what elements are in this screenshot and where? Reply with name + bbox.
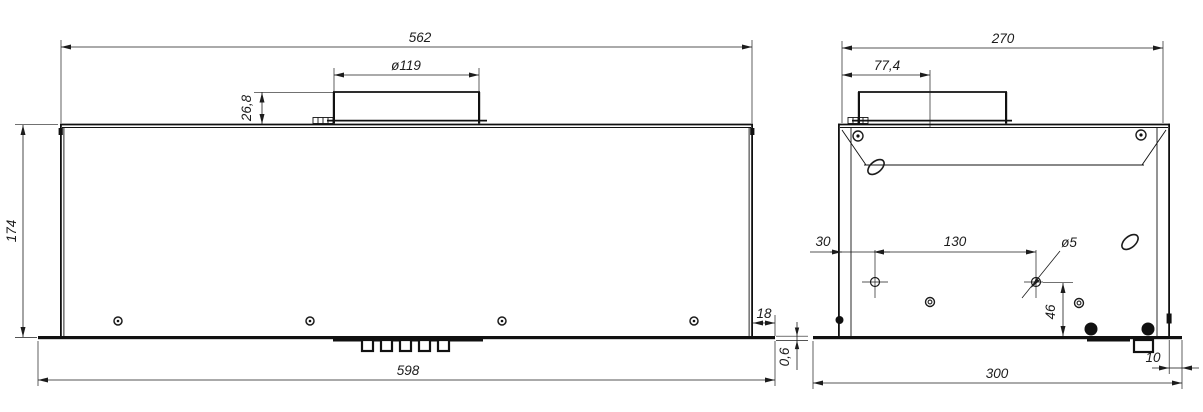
dim-front-panel-thickness: 0,6 bbox=[777, 347, 792, 366]
wall-latch-mark bbox=[836, 316, 844, 324]
vent-tab bbox=[400, 340, 411, 351]
dim-side-hole-spacing: 130 bbox=[944, 234, 967, 249]
side-view: 270 77,4 30 130 ø5 46 10 bbox=[810, 31, 1199, 389]
dim-side-hole-edge-offset: 30 bbox=[815, 234, 831, 249]
corner-weld-mark bbox=[59, 128, 63, 135]
side-body-outline bbox=[836, 124, 1172, 337]
drawing-sheet: 562 ø119 26,8 174 598 18 bbox=[0, 0, 1203, 412]
front-dimensions: 562 ø119 26,8 174 598 18 bbox=[4, 30, 808, 386]
front-body-outline bbox=[59, 124, 755, 337]
corner-weld-mark bbox=[750, 128, 754, 135]
dim-front-body-height: 174 bbox=[4, 220, 19, 243]
wall-latch-mark bbox=[1167, 314, 1172, 324]
dim-side-right-overhang: 10 bbox=[1145, 350, 1161, 365]
oval-slot bbox=[865, 157, 887, 178]
vent-tab bbox=[419, 340, 430, 351]
dim-front-bottom-width: 598 bbox=[397, 363, 420, 378]
screw-grommet bbox=[1075, 299, 1084, 308]
dim-front-duct-diameter: ø119 bbox=[391, 58, 421, 73]
dim-side-hole-height: 46 bbox=[1043, 304, 1058, 320]
front-view: 562 ø119 26,8 174 598 18 bbox=[4, 30, 808, 386]
side-duct-collar bbox=[848, 70, 1012, 127]
front-bottom-screws bbox=[114, 317, 698, 325]
dim-side-hole-diameter: ø5 bbox=[1061, 235, 1077, 250]
vent-tab bbox=[362, 340, 373, 351]
foot bbox=[1142, 323, 1155, 336]
side-holes bbox=[862, 157, 1155, 336]
dim-front-top-width: 562 bbox=[409, 30, 432, 45]
grease-channel bbox=[1087, 336, 1130, 342]
side-bottom-panel bbox=[813, 336, 1182, 352]
dim-side-top-width: 270 bbox=[991, 31, 1015, 46]
dim-front-collar-height: 26,8 bbox=[239, 94, 254, 122]
screw-grommet bbox=[926, 298, 935, 307]
vent-tab bbox=[381, 340, 392, 351]
technical-drawing-canvas: 562 ø119 26,8 174 598 18 bbox=[0, 0, 1203, 412]
dim-front-right-overhang: 18 bbox=[756, 306, 772, 321]
front-bottom-panel bbox=[38, 336, 775, 351]
dim-side-bottom-width: 300 bbox=[986, 366, 1009, 381]
vent-tab bbox=[438, 340, 449, 351]
foot bbox=[1085, 323, 1098, 336]
oval-slot bbox=[1119, 232, 1141, 253]
side-dimensions: 270 77,4 30 130 ø5 46 10 bbox=[810, 31, 1199, 389]
dim-side-collar-offset: 77,4 bbox=[874, 58, 900, 73]
front-duct-collar bbox=[313, 92, 487, 124]
